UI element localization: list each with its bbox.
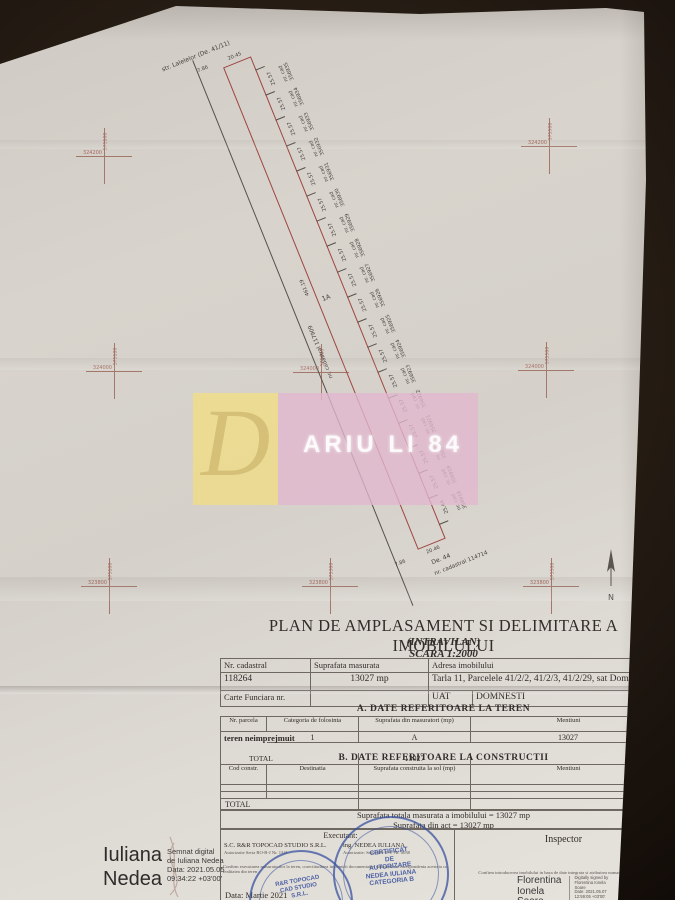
signature-name: Florentina Ionela Soare xyxy=(517,876,561,900)
empty-cell xyxy=(221,792,267,799)
digital-signature-block: Florentina Ionela Soare Digitally signed… xyxy=(517,876,608,900)
grid-cross: 323800 575300 xyxy=(302,558,358,614)
cross-north-label: 324200 xyxy=(83,150,102,156)
cross-east-label: 575100 xyxy=(103,131,110,153)
north-arrow: N xyxy=(600,548,622,602)
grid-cross: 324200 575500 xyxy=(521,118,577,174)
inspector-cell: Inspector Confirm introducerea imobilulu… xyxy=(455,830,666,900)
paper-edge-shadow xyxy=(620,0,675,900)
totals-lines: Suprafata totala masurata a imobilului =… xyxy=(221,810,666,831)
cross-north-label: 324000 xyxy=(93,365,112,371)
grid-cross: 323800 575100 xyxy=(81,558,137,614)
row-categoria: A xyxy=(359,732,471,743)
watermark-yellow-block: D xyxy=(193,393,278,505)
stamp-ring xyxy=(338,821,444,900)
row-suprafata: 13027 xyxy=(471,732,666,743)
empty-cell xyxy=(267,792,359,799)
parcel-strip-drawing: str. Lalelelor (De. 41/11) 7.86 20.45 1A… xyxy=(223,56,446,549)
side-signature-name: Iuliana Nedea xyxy=(103,843,162,891)
signature-details: Digitally signed by Florentina Ionela So… xyxy=(569,876,608,900)
north-arrow-icon xyxy=(603,548,619,588)
header-nr-cadastral: Nr. cadastral xyxy=(221,659,311,673)
grid-cross: 324000 575500 xyxy=(518,342,574,398)
header-suprafata: Suprafata masurata xyxy=(311,659,429,673)
value-suprafata: 13027 mp xyxy=(311,673,429,691)
cross-east-label: 575100 xyxy=(108,561,115,583)
col-nr-parcela: Nr. parcela xyxy=(221,717,267,732)
signatures-box: Executant: S.C. R&R TOPOCAD STUDIO S.R.L… xyxy=(220,829,667,900)
paper-top-shadow xyxy=(0,0,675,40)
cross-north-label: 323800 xyxy=(530,580,549,586)
cross-north-label: 324200 xyxy=(528,140,547,146)
inspector-label: Inspector xyxy=(458,834,669,845)
header-table: Nr. cadastral Suprafata masurata Adresa … xyxy=(220,658,667,707)
top-dimension-1: 7.86 xyxy=(197,64,210,74)
grid-cross: 324000 575100 xyxy=(86,343,142,399)
col-suprafata-masuratori: Suprafata din masuratori (mp) xyxy=(359,717,471,732)
grid-cross: 323800 575500 xyxy=(523,558,579,614)
empty-cell xyxy=(359,792,471,799)
col-cod-constr: Cod constr. xyxy=(221,765,267,785)
section-b-title: B. DATE REFERITOARE LA CONSTRUCTII xyxy=(220,753,667,763)
value-adresa: Tarla 11, Parcelele 41/2/2, 41/2/3, 41/2… xyxy=(429,673,675,691)
empty-cell xyxy=(471,792,666,799)
photo-backdrop: 324200 575100 324200 575500 324000 57510… xyxy=(0,0,675,900)
cross-east-label: 575500 xyxy=(548,121,555,143)
header-adresa: Adresa imobilului xyxy=(429,659,675,673)
col-categoria: Categoria de folosinta xyxy=(267,717,359,732)
executant-cell: Executant: S.C. R&R TOPOCAD STUDIO S.R.L… xyxy=(221,830,455,900)
col-destinatia: Destinatia xyxy=(267,765,359,785)
cross-east-label: 575500 xyxy=(545,345,552,367)
watermark-logo-glyph: D xyxy=(201,387,270,498)
col-mentiuni: Mentiuni xyxy=(471,717,666,732)
totals-box: Suprafata totala masurata a imobilului =… xyxy=(220,809,667,829)
empty-cell xyxy=(359,785,471,792)
constructii-table: Cod constr. Destinatia Suprafata constru… xyxy=(220,764,667,811)
west-boundary-line xyxy=(192,60,413,606)
row-mentiuni: teren neimprejmuit xyxy=(221,732,267,753)
cross-north-label: 323800 xyxy=(309,580,328,586)
bottom-dimension-1: 7.86 xyxy=(394,558,407,568)
side-signature-details: Semnat digital de Iuliana Nedea Data: 20… xyxy=(167,847,225,891)
north-label: N xyxy=(600,593,622,602)
cross-north-label: 324000 xyxy=(525,364,544,370)
cross-east-label: 575100 xyxy=(113,346,120,368)
plan-subtitle: (INTRAVILAN) xyxy=(220,636,667,648)
value-nr-cadastral: 118264 xyxy=(221,673,311,691)
empty-cell xyxy=(267,785,359,792)
cross-east-label: 575500 xyxy=(550,561,557,583)
paper-sheet: 324200 575100 324200 575500 324000 57510… xyxy=(0,0,675,900)
col-mentiuni-b: Mentiuni xyxy=(471,765,666,785)
firm-name: S.C. R&R TOPOCAD STUDIO S.R.L. xyxy=(224,842,342,850)
section-a-title: A. DATE REFERITOARE LA TEREN xyxy=(220,704,667,714)
empty-cell xyxy=(471,785,666,792)
side-digital-signature: Iuliana Nedea Semnat digital de Iuliana … xyxy=(103,843,224,891)
col-suprafata-sol: Suprafata construita la sol (mp) xyxy=(359,765,471,785)
inspector-confirm-text: Confirm introducerea imobilului in baza … xyxy=(459,870,664,875)
cross-east-label: 575300 xyxy=(329,561,336,583)
parcel-outline xyxy=(223,56,446,549)
cross-north-label: 323800 xyxy=(88,580,107,586)
empty-cell xyxy=(221,785,267,792)
grid-cross: 324200 575100 xyxy=(76,128,132,184)
